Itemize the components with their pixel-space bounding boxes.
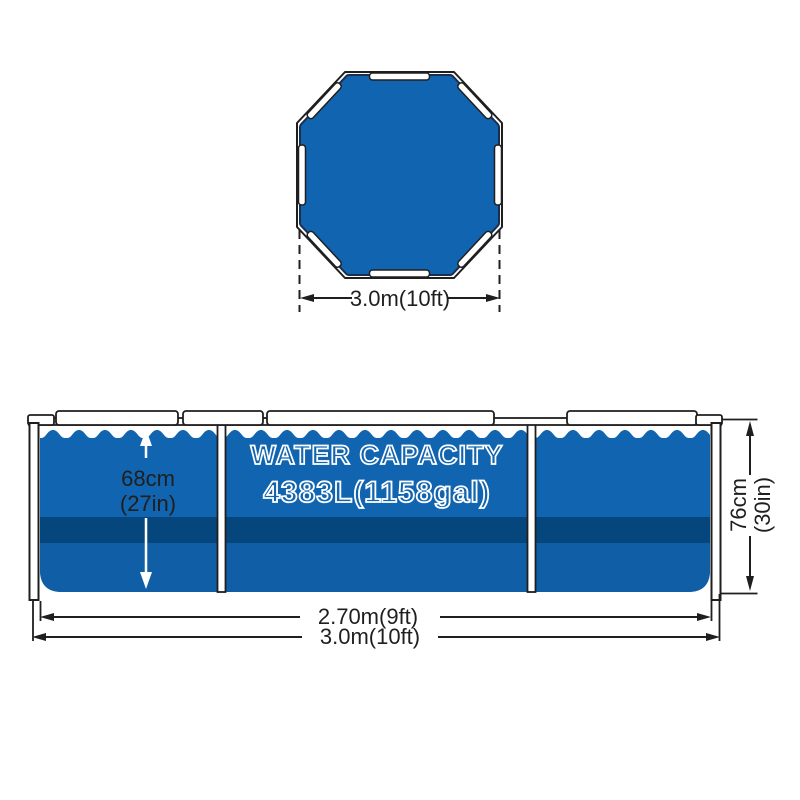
arrowhead-left-icon	[32, 633, 46, 641]
rail-segment-2	[183, 411, 263, 425]
frame-leg-left	[30, 423, 39, 600]
capacity-title: WATER CAPACITY	[251, 440, 504, 470]
height-value: 76cm	[726, 478, 751, 532]
arrowhead-left-icon	[300, 294, 314, 302]
arrowhead-right-icon	[486, 294, 500, 302]
rail-segment-4	[567, 411, 697, 425]
frame-post-1	[218, 424, 226, 592]
arrowhead-down-icon	[746, 576, 754, 591]
rail-segment-3	[267, 411, 494, 425]
rail-slot-top	[370, 73, 430, 80]
frame-leg-right	[712, 423, 721, 600]
pool-spec-diagram: 3.0m(10ft) WATER CAPACITY 4383L(1158gal)…	[0, 0, 800, 800]
top-width-dimension: 3.0m(10ft)	[300, 286, 500, 311]
rail-segment-1	[56, 411, 178, 425]
rail-slot-right	[495, 145, 502, 205]
rail-slot-left	[299, 145, 306, 205]
outer-width-label: 3.0m(10ft)	[320, 624, 420, 649]
depth-value: 68cm	[121, 466, 175, 491]
rail-slot-bottom	[370, 270, 430, 277]
side-view: WATER CAPACITY 4383L(1158gal) 68cm (27in…	[28, 411, 775, 649]
liner-dark-band	[40, 517, 710, 543]
top-view: 3.0m(10ft)	[297, 72, 502, 312]
height-dimension: 76cm (30in)	[721, 420, 775, 594]
water-lower-region	[40, 543, 710, 592]
arrowhead-up-icon	[746, 421, 754, 436]
arrowhead-right-icon	[697, 613, 711, 621]
outer-width-dimension: 3.0m(10ft)	[32, 624, 720, 649]
frame-post-2	[528, 424, 536, 592]
top-width-label: 3.0m(10ft)	[350, 286, 450, 311]
height-value-in: (30in)	[750, 477, 775, 533]
arrowhead-left-icon	[40, 613, 54, 621]
water-surface-waves	[40, 428, 710, 440]
octagon-liner	[304, 79, 495, 271]
depth-value-in: (27in)	[120, 491, 176, 516]
capacity-value: 4383L(1158gal)	[263, 476, 490, 509]
arrowhead-right-icon	[706, 633, 720, 641]
top-rail-segments	[28, 411, 722, 425]
diagram-svg: 3.0m(10ft) WATER CAPACITY 4383L(1158gal)…	[0, 0, 800, 800]
